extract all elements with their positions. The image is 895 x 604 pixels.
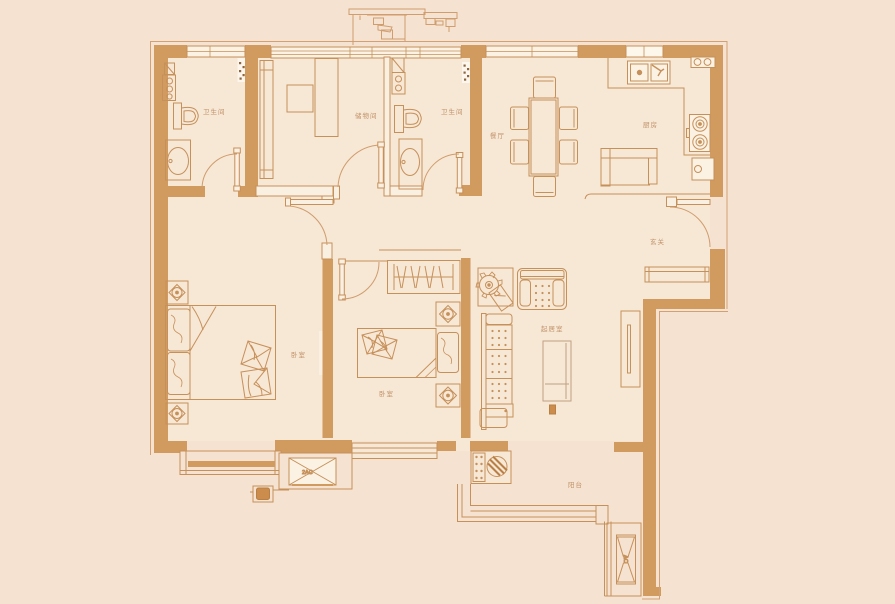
svg-text:阳台: 阳台 [568,480,583,489]
svg-text:卧室: 卧室 [291,350,306,359]
svg-text:卧室: 卧室 [379,389,394,398]
svg-text:餐厅: 餐厅 [490,131,505,140]
svg-text:卫生间: 卫生间 [441,107,464,116]
svg-text:储物间: 储物间 [355,111,378,120]
svg-text:AC: AC [622,555,628,563]
svg-text:玄关: 玄关 [650,237,665,246]
svg-text:起居室: 起居室 [541,324,564,333]
svg-text:2AC: 2AC [302,470,313,476]
svg-text:厨房: 厨房 [643,120,658,129]
svg-text:卫生间: 卫生间 [203,107,226,116]
